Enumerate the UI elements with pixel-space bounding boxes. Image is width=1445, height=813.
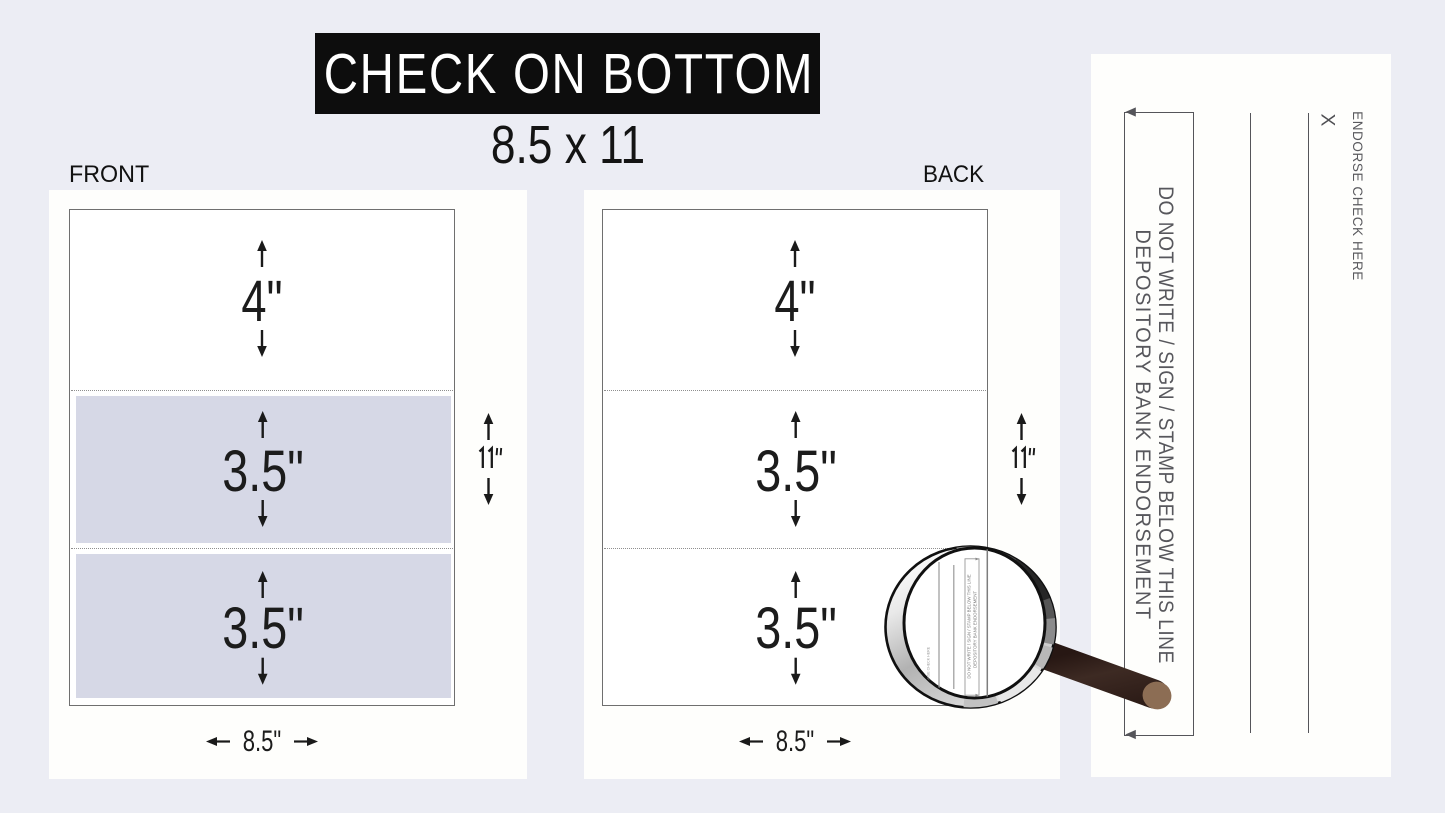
svg-text:DEPOSITORY BANK ENDORSEMENT: DEPOSITORY BANK ENDORSEMENT: [972, 591, 977, 668]
svg-text:DO NOT WRITE / SIGN / STAMP BE: DO NOT WRITE / SIGN / STAMP BELOW THIS L…: [966, 574, 971, 678]
